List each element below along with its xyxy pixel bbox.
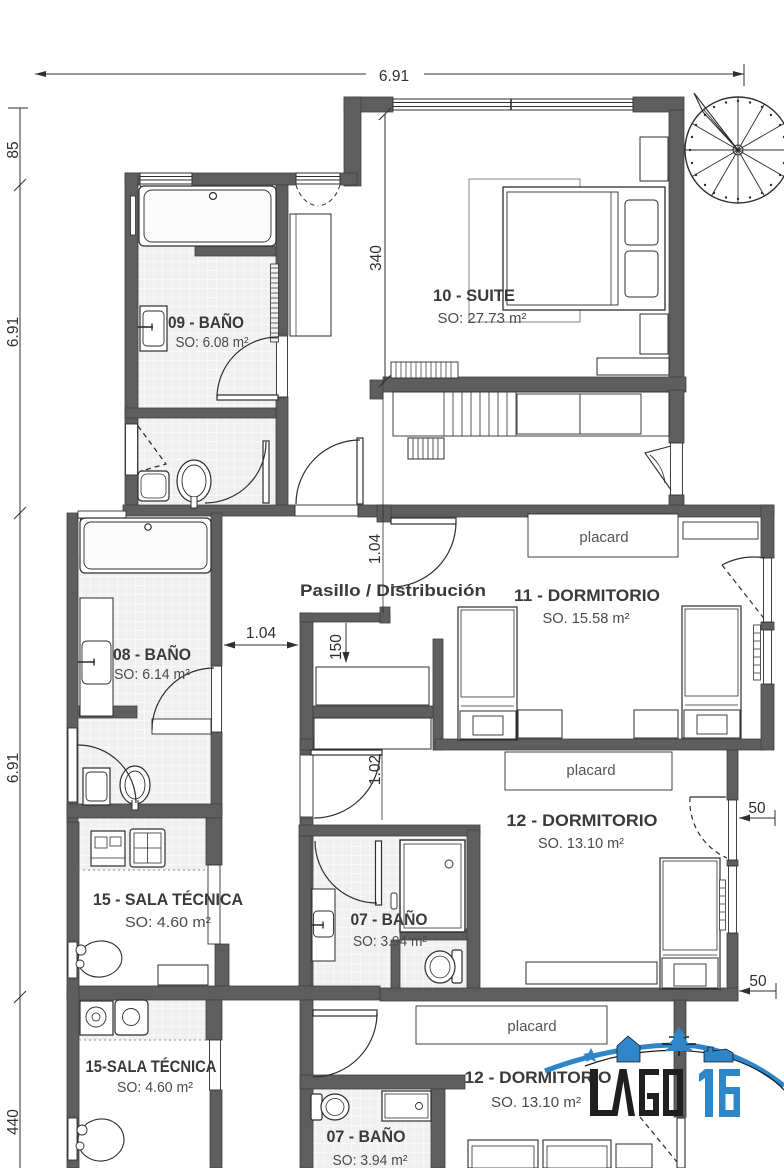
svg-text:11 - DORMITORIO: 11 - DORMITORIO: [514, 586, 660, 605]
svg-text:50: 50: [749, 973, 767, 990]
svg-text:SO: 4.60 m²: SO: 4.60 m²: [125, 915, 211, 931]
svg-text:SO. 15.58 m²: SO. 15.58 m²: [543, 611, 630, 627]
svg-text:440: 440: [5, 1109, 22, 1135]
svg-text:15-SALA TÉCNICA: 15-SALA TÉCNICA: [86, 1057, 217, 1076]
svg-text:6.91: 6.91: [5, 753, 22, 783]
svg-text:placard: placard: [566, 762, 615, 779]
svg-text:SO: 27.73 m²: SO: 27.73 m²: [438, 311, 527, 327]
svg-text:SO. 13.10 m²: SO. 13.10 m²: [491, 1095, 581, 1111]
svg-text:07 - BAÑO: 07 - BAÑO: [327, 1126, 406, 1146]
svg-text:1.02: 1.02: [367, 755, 384, 785]
svg-text:Pasillo / Distribución: Pasillo / Distribución: [300, 581, 486, 600]
svg-text:SO: 3.94 m²: SO: 3.94 m²: [333, 1153, 408, 1168]
svg-text:1.04: 1.04: [367, 534, 384, 565]
svg-text:12 - DORMITORIO: 12 - DORMITORIO: [507, 811, 658, 830]
svg-text:SO. 13.10 m²: SO. 13.10 m²: [538, 836, 624, 852]
svg-text:placard: placard: [579, 529, 628, 546]
svg-text:SO: 4.60 m²: SO: 4.60 m²: [117, 1080, 193, 1096]
svg-text:08 - BAÑO: 08 - BAÑO: [113, 644, 191, 664]
svg-text:50: 50: [748, 800, 766, 817]
svg-text:07 - BAÑO: 07 - BAÑO: [351, 909, 428, 929]
svg-text:10 - SUITE: 10 - SUITE: [433, 286, 515, 305]
svg-text:placard: placard: [507, 1018, 556, 1035]
svg-text:6.91: 6.91: [5, 317, 22, 347]
svg-text:SO: 3.94 m²: SO: 3.94 m²: [353, 934, 427, 950]
svg-text:SO: 6.14 m²: SO: 6.14 m²: [114, 667, 190, 683]
svg-text:6.91: 6.91: [379, 68, 409, 85]
svg-text:85: 85: [5, 141, 22, 158]
svg-text:15 - SALA TÉCNICA: 15 - SALA TÉCNICA: [93, 890, 243, 909]
svg-text:340: 340: [368, 245, 385, 271]
svg-text:1.04: 1.04: [246, 625, 277, 642]
svg-text:09 - BAÑO: 09 - BAÑO: [168, 312, 244, 332]
svg-text:SO: 6.08 m²: SO: 6.08 m²: [176, 335, 249, 351]
svg-text:12 - DORMITORIO: 12 - DORMITORIO: [465, 1068, 612, 1087]
svg-text:150: 150: [328, 634, 345, 660]
